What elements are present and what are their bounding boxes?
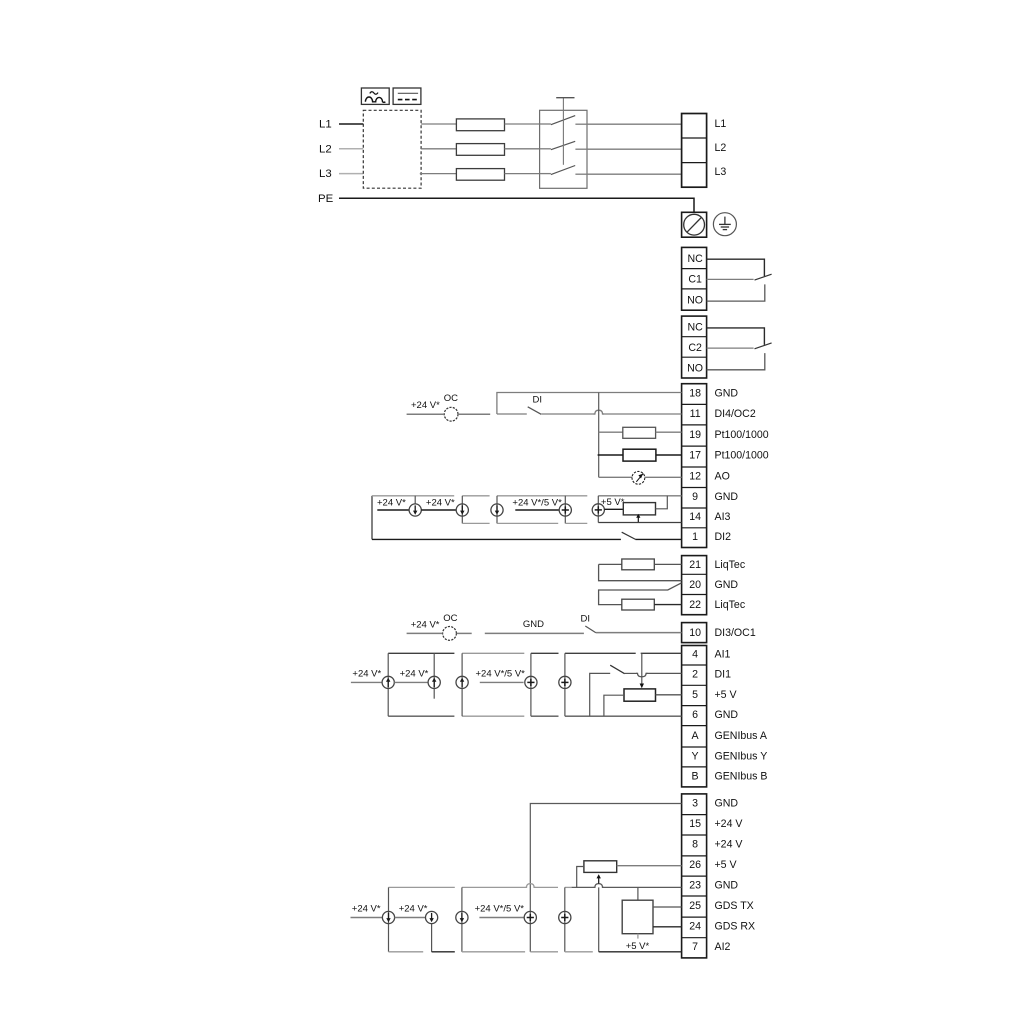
svg-text:+24 V*: +24 V* (377, 498, 406, 509)
svg-text:AI2: AI2 (715, 941, 731, 953)
svg-text:+24 V*: +24 V* (400, 668, 429, 679)
svg-text:NC: NC (687, 253, 703, 265)
svg-text:GND: GND (715, 709, 739, 721)
svg-text:GENIbus Y: GENIbus Y (715, 750, 768, 762)
svg-text:12: 12 (689, 471, 701, 483)
svg-text:+24 V: +24 V (715, 839, 744, 851)
svg-text:19: 19 (689, 429, 701, 441)
svg-text:AI3: AI3 (715, 511, 731, 523)
svg-text:PE: PE (318, 193, 334, 205)
svg-text:NO: NO (687, 294, 703, 306)
svg-text:14: 14 (689, 511, 701, 523)
svg-text:GND: GND (523, 619, 544, 630)
svg-text:L3: L3 (715, 166, 727, 178)
svg-text:+5 V: +5 V (715, 859, 738, 871)
svg-text:25: 25 (689, 900, 701, 912)
svg-text:DI3/OC1: DI3/OC1 (715, 627, 756, 639)
svg-text:5: 5 (692, 689, 698, 701)
svg-text:18: 18 (689, 387, 701, 399)
svg-text:GND: GND (715, 579, 739, 591)
svg-text:LiqTec: LiqTec (715, 599, 746, 611)
svg-text:+24 V*: +24 V* (399, 904, 428, 915)
svg-text:17: 17 (689, 450, 701, 462)
svg-text:AO: AO (715, 471, 730, 483)
svg-text:15: 15 (689, 818, 701, 830)
svg-text:7: 7 (692, 941, 698, 953)
svg-text:Pt100/1000: Pt100/1000 (715, 429, 769, 441)
svg-text:+24 V*: +24 V* (426, 498, 455, 509)
svg-text:OC: OC (444, 393, 458, 404)
svg-text:23: 23 (689, 879, 701, 891)
svg-text:GND: GND (715, 491, 739, 503)
svg-text:GND: GND (715, 798, 739, 810)
svg-text:11: 11 (690, 408, 701, 420)
svg-text:DI: DI (533, 395, 543, 406)
svg-text:L2: L2 (319, 143, 332, 155)
svg-text:+24 V*: +24 V* (352, 668, 381, 679)
svg-text:L3: L3 (319, 168, 332, 180)
svg-text:B: B (692, 770, 699, 782)
svg-text:Y: Y (692, 750, 699, 762)
svg-text:24: 24 (689, 921, 701, 933)
svg-text:3: 3 (692, 798, 698, 810)
svg-text:NO: NO (687, 363, 703, 375)
svg-text:C2: C2 (688, 342, 702, 354)
svg-text:C1: C1 (688, 274, 702, 286)
svg-text:GND: GND (715, 387, 739, 399)
svg-text:+24 V: +24 V (715, 818, 744, 830)
svg-text:GDS TX: GDS TX (715, 900, 754, 912)
svg-text:+24 V*/5 V*: +24 V*/5 V* (476, 668, 526, 679)
svg-text:AI1: AI1 (715, 648, 731, 660)
svg-text:L1: L1 (319, 119, 332, 131)
svg-text:L1: L1 (715, 118, 727, 130)
svg-text:DI: DI (581, 614, 591, 625)
svg-text:DI4/OC2: DI4/OC2 (715, 408, 756, 420)
svg-text:6: 6 (692, 709, 698, 721)
svg-text:LiqTec: LiqTec (715, 559, 746, 571)
svg-text:+24 V*: +24 V* (411, 620, 440, 631)
svg-text:L2: L2 (715, 142, 727, 154)
svg-text:10: 10 (689, 627, 701, 639)
svg-text:GDS RX: GDS RX (715, 921, 756, 933)
svg-text:GND: GND (715, 879, 739, 891)
svg-text:DI2: DI2 (715, 531, 732, 543)
svg-text:9: 9 (692, 491, 698, 503)
svg-text:22: 22 (689, 599, 701, 611)
svg-text:8: 8 (692, 839, 698, 851)
svg-text:2: 2 (692, 669, 698, 681)
svg-text:20: 20 (689, 579, 701, 591)
svg-text:OC: OC (443, 613, 457, 624)
svg-text:21: 21 (689, 559, 701, 571)
svg-text:1: 1 (692, 531, 698, 543)
svg-text:GENIbus B: GENIbus B (715, 770, 768, 782)
svg-text:GENIbus A: GENIbus A (715, 730, 768, 742)
svg-text:+24 V*: +24 V* (411, 400, 440, 411)
svg-text:NC: NC (687, 321, 703, 333)
svg-text:+5 V*: +5 V* (626, 941, 650, 952)
svg-text:+24 V*: +24 V* (352, 904, 381, 915)
svg-text:+5 V: +5 V (715, 689, 738, 701)
svg-text:DI1: DI1 (715, 669, 732, 681)
svg-text:+24 V*/5 V*: +24 V*/5 V* (475, 904, 525, 915)
svg-text:A: A (692, 730, 700, 742)
svg-text:+5 V*: +5 V* (601, 497, 625, 508)
svg-text:26: 26 (689, 859, 701, 871)
svg-text:Pt100/1000: Pt100/1000 (715, 450, 769, 462)
svg-text:+24 V*/5 V*: +24 V*/5 V* (512, 498, 562, 509)
svg-text:4: 4 (692, 648, 698, 660)
